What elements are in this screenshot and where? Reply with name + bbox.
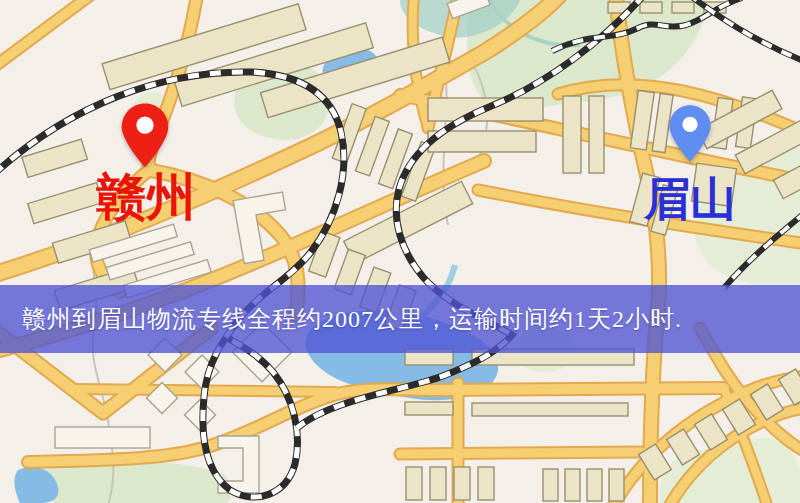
- map-canvas[interactable]: [0, 0, 800, 503]
- destination-pin[interactable]: [667, 103, 713, 164]
- route-info-text: 赣州到眉山物流专线全程约2007公里，运输时间约1天2小时.: [22, 303, 682, 335]
- origin-city-label: 赣州: [96, 172, 196, 222]
- map-pin-icon: [119, 101, 171, 170]
- map-pin-icon: [667, 103, 713, 164]
- destination-city-label: 眉山: [644, 177, 736, 223]
- logistics-route-map[interactable]: 赣州 眉山 赣州到眉山物流专线全程约2007公里，运输时间约1天2小时.: [0, 0, 800, 503]
- route-info-banner: 赣州到眉山物流专线全程约2007公里，运输时间约1天2小时.: [0, 285, 800, 353]
- origin-pin[interactable]: [119, 101, 171, 170]
